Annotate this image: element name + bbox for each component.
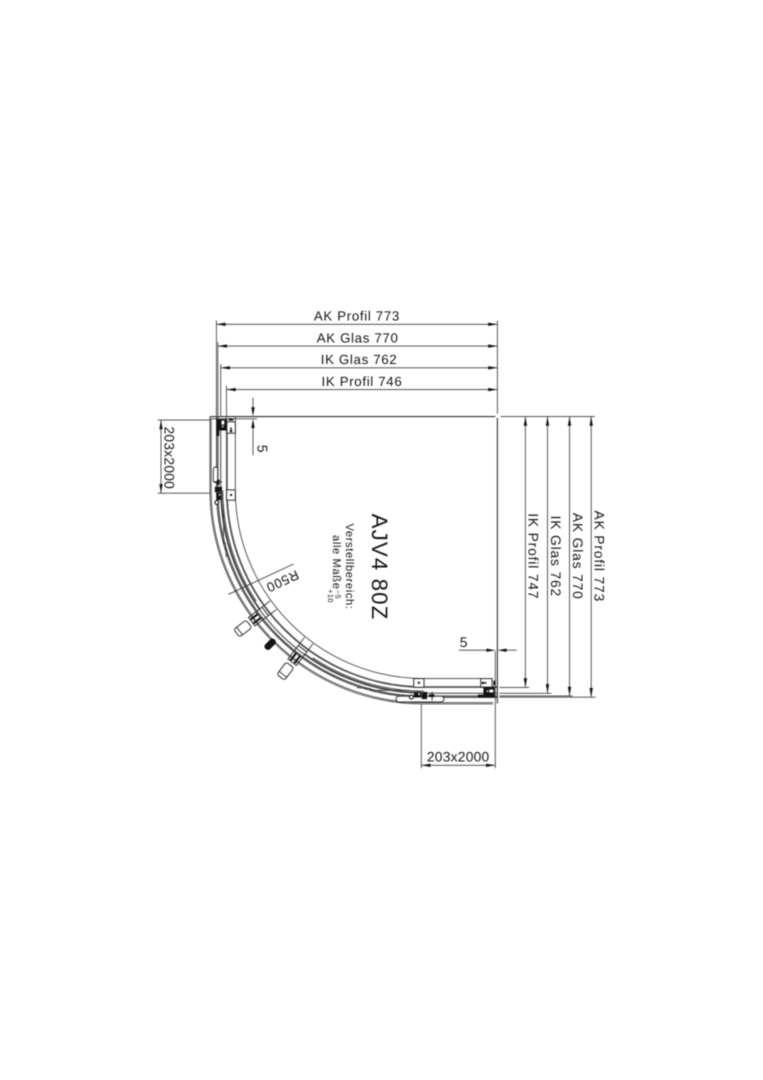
svg-text:IK Profil 746: IK Profil 746 <box>322 374 403 389</box>
svg-text:+10: +10 <box>326 589 335 602</box>
svg-text:AJV4 80Z: AJV4 80Z <box>367 514 392 621</box>
svg-text:IK Glas 762: IK Glas 762 <box>548 516 563 597</box>
svg-text:AK Profil 773: AK Profil 773 <box>592 511 607 603</box>
svg-text:5: 5 <box>460 634 468 650</box>
svg-text:alle Maße: alle Maße <box>330 535 342 590</box>
svg-text:203x2000: 203x2000 <box>427 749 490 764</box>
svg-text:AK Glas 770: AK Glas 770 <box>317 331 399 346</box>
svg-text:IK Profil 747: IK Profil 747 <box>526 513 541 599</box>
svg-text:203x2000: 203x2000 <box>162 426 177 489</box>
svg-text:Verstellbereich:: Verstellbereich: <box>343 523 355 609</box>
svg-text:5: 5 <box>255 445 271 453</box>
svg-text:AK Profil 773: AK Profil 773 <box>314 309 400 324</box>
svg-text:IK Glas 762: IK Glas 762 <box>321 352 398 367</box>
svg-text:AK Glas 770: AK Glas 770 <box>570 513 585 600</box>
